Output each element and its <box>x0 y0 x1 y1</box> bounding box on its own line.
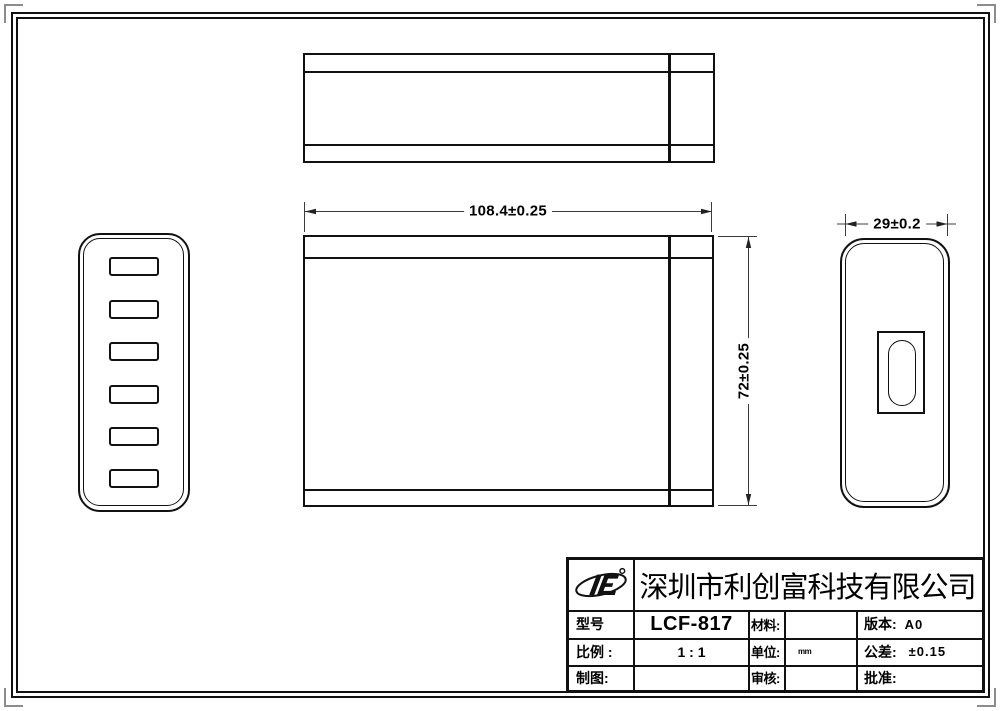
scale-label: 比例 : <box>576 638 613 665</box>
model-value: LCF-817 <box>635 610 748 638</box>
title-block-col-line <box>748 610 750 690</box>
title-block: 深圳市利创富科技有限公司 型号 LCF-817 材料: 版本: A0 比例 : … <box>566 557 985 693</box>
version-label: 版本: <box>864 614 897 634</box>
scale-value: 1 : 1 <box>635 638 748 665</box>
approve-label: 批准: <box>864 668 897 688</box>
unit-value: mm <box>798 638 811 665</box>
title-block-col-line <box>856 610 858 690</box>
company-logo <box>569 560 633 610</box>
material-label: 材料: <box>751 610 780 638</box>
width-dimension-label: 108.4±0.25 <box>464 203 552 220</box>
depth-dimension-label: 29±0.2 <box>868 216 926 233</box>
review-label: 审核: <box>751 665 780 690</box>
tolerance-value: ±0.15 <box>909 644 946 659</box>
height-dimension-label: 72±0.25 <box>736 338 753 404</box>
company-logo-icon <box>572 564 630 606</box>
draft-label: 制图: <box>576 665 609 690</box>
engineering-drawing-sheet: 108.4±0.25 72±0.25 29±0.2 <box>0 0 1000 711</box>
title-block-col-line <box>784 610 786 690</box>
company-name: 深圳市利创富科技有限公司 <box>633 560 982 610</box>
model-label: 型号 <box>576 610 604 638</box>
version-value: A0 <box>905 617 924 632</box>
tolerance-label: 公差: <box>864 642 897 662</box>
unit-label: 单位: <box>751 638 780 665</box>
